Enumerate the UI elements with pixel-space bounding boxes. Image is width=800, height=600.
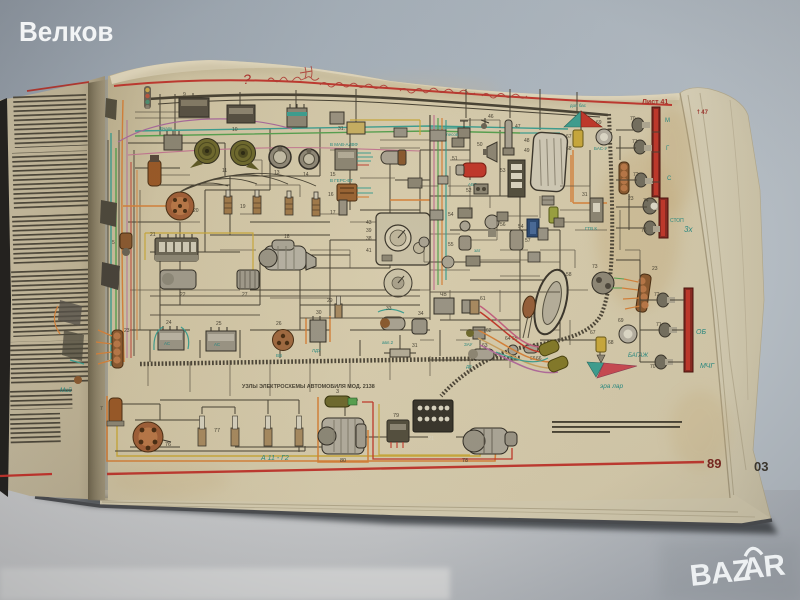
svg-text:Велков: Велков — [19, 16, 113, 47]
